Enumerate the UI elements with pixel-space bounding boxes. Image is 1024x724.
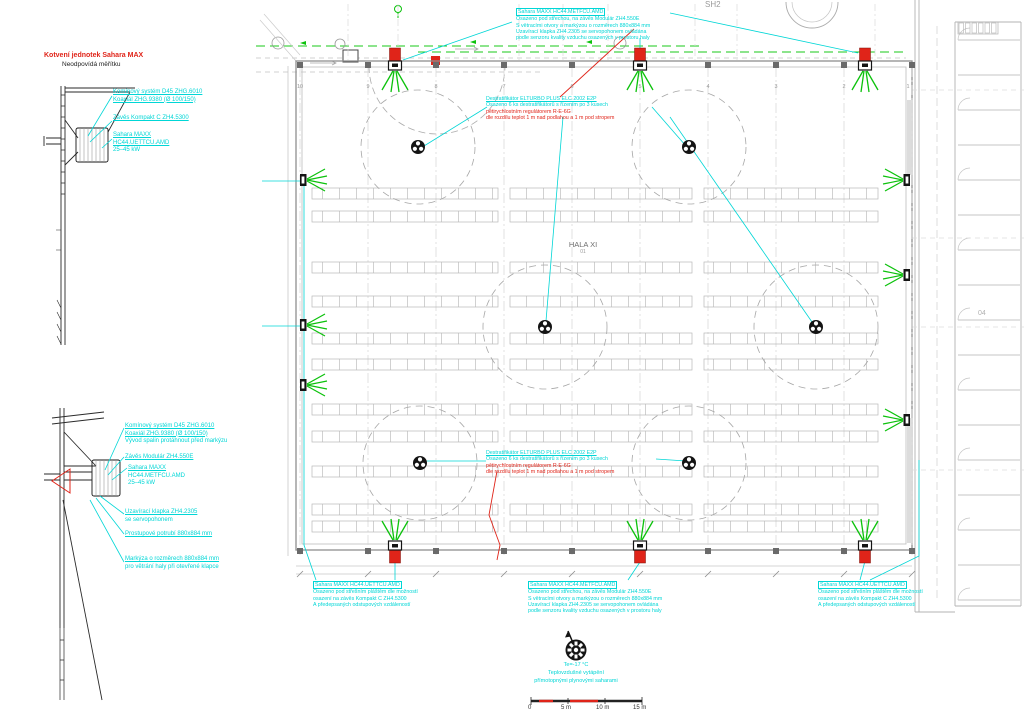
annotation-line: Sahara MAXX HC44.METFCU.AMD [528, 581, 617, 589]
detail-bottom-drawing [44, 408, 127, 700]
destratifier-fan-icon [538, 320, 552, 334]
storage-rack-row [312, 188, 498, 199]
column [569, 548, 575, 554]
annotation-line: S větracími otvory a markýzou o rozměrec… [516, 23, 650, 29]
grid-col-label: 4 [703, 84, 713, 90]
label-duct: Prostupové potrubí 880x884 mm [125, 531, 212, 538]
storage-rack-row [312, 466, 498, 477]
red-leader-line [489, 471, 500, 560]
column [569, 62, 575, 68]
destratifier-fan-icon [682, 140, 696, 154]
annotation-line: S větracími otvory a markýzou o rozměrec… [528, 596, 662, 602]
label-coaxial: Koaxiál ZHG.9380 (Ø 100/150) [113, 97, 196, 104]
column [297, 548, 303, 554]
annotation-roof-units-top: Sahara MAXX HC44.METFCU.AMD Osazeno pod … [516, 8, 650, 41]
column [365, 62, 371, 68]
storage-rack-row [704, 333, 878, 344]
storage-rack-row [510, 359, 692, 370]
annotation-line: Osazeno pod střešním pláštěm dle možnost… [313, 589, 418, 595]
storage-rack-row [510, 188, 692, 199]
room-04-label: 04 [978, 310, 986, 317]
storage-rack-row [704, 466, 878, 477]
stall [979, 23, 984, 33]
annotation-line: A předepsaných odstupových vzdáleností [818, 602, 923, 608]
sahara-roof-unit [852, 48, 878, 92]
door-arc [958, 98, 970, 110]
annotation-line: Osazeno 6 ks destratifikátorů s řízením … [486, 456, 614, 462]
north-wheel-symbol [565, 631, 587, 661]
storage-rack-row [510, 504, 692, 515]
label-damper-servo: se servopohonem [125, 517, 173, 524]
column [297, 62, 303, 68]
grid-col-label: 3 [771, 84, 781, 90]
annotation-line: Sahara MAXX HC44.UETTCU.AMD [818, 581, 907, 589]
annotation-destratifier-bottom: Destratifikátor ELTURBO PLUS ELC 2002 E2… [486, 450, 614, 475]
annotation-line: Osazeno pod střešním pláštěm dle možnost… [818, 589, 923, 595]
annotation-line: Osazeno pod střechou, na závěs Modulár Z… [516, 16, 650, 22]
storage-rack-row [312, 504, 498, 515]
detail-top-subtitle: Neodpovídá měřítku [62, 61, 121, 68]
annotation-line: Sahara MAXX HC44.METFCU.AMD [516, 8, 605, 16]
grid-col-label: 1 [903, 84, 913, 90]
grid-col-label: 2 [839, 84, 849, 90]
column [773, 548, 779, 554]
leader-line [670, 13, 858, 53]
annotation-line: Sahara MAXX HC44.UETTCU.AMD [313, 581, 402, 589]
storage-rack-row [704, 504, 878, 515]
label-unit-power: 25–45 kW [128, 480, 155, 487]
leader-line [652, 107, 686, 146]
column [909, 548, 915, 554]
leader-line [656, 459, 686, 461]
label-hanger-kompakt: Závěs Kompakt C ZH4.5300 [113, 115, 189, 122]
detail-top-title: Kotvení jednotek Sahara MAX [44, 52, 143, 59]
storage-rack-row [510, 431, 692, 442]
leader-line [403, 22, 512, 60]
storage-rack-row [510, 211, 692, 222]
stall [992, 23, 997, 33]
storage-rack-row [312, 262, 498, 273]
door-arc [958, 588, 970, 600]
storage-rack-row [704, 262, 878, 273]
annotation-line: Osazeno pod střechou, na závěs Modulár Z… [528, 589, 662, 595]
label-unit-power: 25–45 kW [113, 147, 140, 154]
hall-number: 01 [548, 249, 618, 255]
storage-rack-row [704, 431, 878, 442]
column [909, 62, 915, 68]
label-awning-note: pro větrání haly při otevřené klapce [125, 564, 219, 571]
annotation-line: dle rozdílu teplot 1 m nad podlahou a 1 … [486, 115, 614, 121]
annotation-destratifier-top: Destratifikátor ELTURBO PLUS ELC 2002 E2… [486, 96, 614, 121]
storage-rack-row [510, 521, 692, 532]
red-flow-arrow [52, 469, 70, 493]
annotation-line: A předepsaných odstupových vzdáleností [313, 602, 418, 608]
annotation-line: Osazeno 6 ks destratifikátorů s řízením … [486, 102, 614, 108]
hall-plan [262, 4, 919, 580]
heating-type-line1: Teplovzdušné vytápění [518, 670, 634, 676]
cad-drawing-sheet: Kotvení jednotek Sahara MAX Neodpovídá m… [0, 0, 1024, 724]
label-unit-type: HC44.METFCU.AMD [128, 473, 185, 480]
leader-line [860, 561, 865, 580]
annotation-wall-units-left: Sahara MAXX HC44.UETTCU.AMD Osazeno pod … [313, 581, 418, 608]
grid-col-label: 8 [431, 84, 441, 90]
annotation-line: podle senzoru kvality vzduchu osazených … [528, 608, 662, 614]
scale-label-0: 0 [528, 705, 531, 711]
grid-col-label: 7 [499, 84, 509, 90]
adjacent-building [912, 0, 1024, 612]
label-awning: Markýza o rozměrech 880x884 mm [125, 556, 219, 563]
storage-rack-row [312, 333, 498, 344]
hall-name: HALA XI [548, 240, 618, 249]
door-arc [958, 518, 970, 530]
grid-col-label: 10 [295, 84, 305, 90]
destratifier-fan-icon [411, 140, 425, 154]
storage-rack-row [704, 188, 878, 199]
annotation-roof-units-bottom: Sahara MAXX HC44.METFCU.AMD Osazeno pod … [528, 581, 662, 614]
column [841, 62, 847, 68]
grid-col-label: 5 [635, 84, 645, 90]
storage-rack-row [704, 521, 878, 532]
label-unit-name: Sahara MAXX [113, 132, 151, 139]
grid-col-label: 9 [363, 84, 373, 90]
label-flue-note: Vývod spalin protáhnout před markýzu [125, 438, 227, 445]
storage-rack-row [312, 359, 498, 370]
annotation-line: osazení na závěs Kompakt C ZH4.5300 [818, 596, 923, 602]
storage-rack-row [704, 211, 878, 222]
column [433, 62, 439, 68]
sahara-roof-unit [382, 48, 408, 92]
column [705, 548, 711, 554]
annotation-line: podle senzoru kvality vzduchu osazených … [516, 35, 650, 41]
storage-rack-row [704, 359, 878, 370]
silo-arc [786, 2, 838, 28]
column [433, 548, 439, 554]
storage-rack-row [510, 333, 692, 344]
stall [985, 23, 990, 33]
door-arc [958, 168, 970, 180]
door-arc [958, 378, 970, 390]
destratifier-fan-icon [413, 456, 427, 470]
storage-rack-row [510, 262, 692, 273]
sh2-label: SH2 [705, 0, 721, 9]
storage-rack-row [510, 404, 692, 415]
storage-rack-row [704, 404, 878, 415]
column [501, 548, 507, 554]
door-arc [958, 238, 970, 250]
annotation-wall-units-right: Sahara MAXX HC44.UETTCU.AMD Osazeno pod … [818, 581, 923, 608]
scale-label-10: 10 m [596, 705, 609, 711]
design-temperature: Te=-17 °C [518, 662, 634, 668]
destratifier-fan-icon [682, 456, 696, 470]
column [841, 548, 847, 554]
door-arc [958, 448, 970, 460]
storage-rack-row [704, 296, 878, 307]
detail-top-drawing [44, 86, 135, 345]
heating-type-line2: přímotopnými plynovými saharami [518, 678, 634, 684]
annotation-line: dle rozdílu teplot 1 m nad podlahou a 1 … [486, 469, 614, 475]
column [501, 62, 507, 68]
leader-line [628, 562, 640, 580]
column [365, 548, 371, 554]
storage-rack-row [312, 211, 498, 222]
destratifier-fan-icon [809, 320, 823, 334]
column [705, 62, 711, 68]
label-hanger-modular: Závěs Modulár ZH4.550E [125, 454, 193, 461]
label-chimney-system: Komínový systém D45 ZHG.6010 [125, 423, 214, 430]
label-unit-type: HC44.UETTCU.AMD [113, 140, 169, 147]
storage-rack-row [312, 296, 498, 307]
storage-rack-row [312, 404, 498, 415]
column [773, 62, 779, 68]
scale-bar [531, 697, 642, 705]
scale-label-15: 15 m [633, 705, 646, 711]
stall [972, 23, 977, 33]
leader-line [424, 107, 487, 146]
scale-label-5: 5 m [561, 705, 571, 711]
storage-rack-row [510, 296, 692, 307]
grid-col-label: 6 [567, 84, 577, 90]
door-arc [958, 308, 970, 320]
label-damper: Uzavírací klapka ZH4.2305 [125, 509, 197, 516]
label-unit-name: Sahara MAXX [128, 465, 166, 472]
label-chimney-system: Komínový systém D45 ZHG.6010 [113, 89, 202, 96]
annotation-line: osazení na závěs Kompakt C ZH4.5300 [313, 596, 418, 602]
label-coaxial: Koaxiál ZHG.9380 (Ø 100/150) [125, 431, 208, 438]
